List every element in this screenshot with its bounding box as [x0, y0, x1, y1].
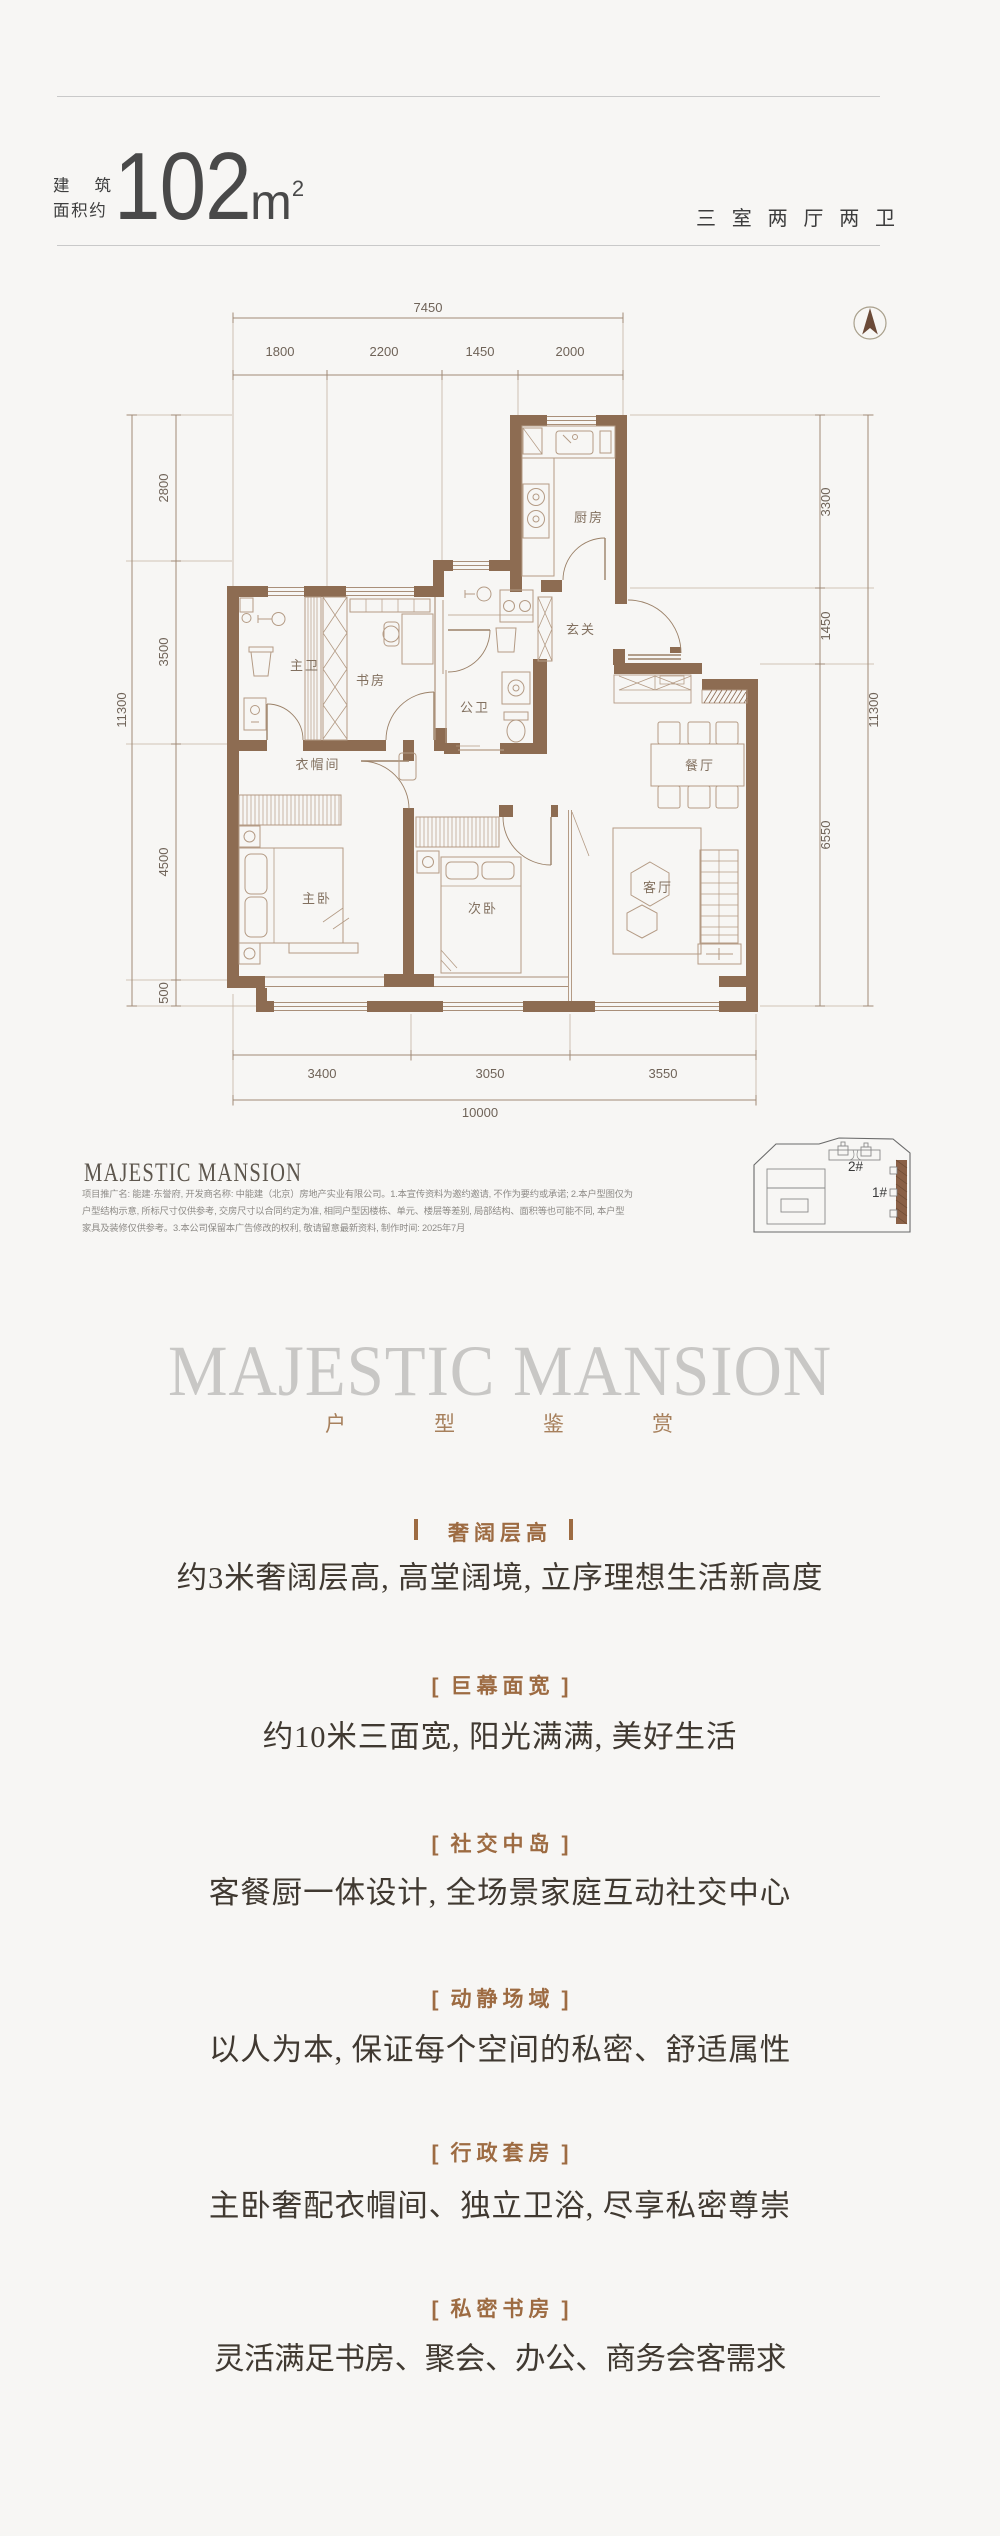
svg-text:500: 500 [156, 982, 171, 1004]
svg-text:1800: 1800 [266, 344, 295, 359]
svg-text:餐厅: 餐厅 [685, 758, 715, 773]
svg-text:10000: 10000 [462, 1105, 498, 1120]
svg-text:3500: 3500 [156, 638, 171, 667]
svg-text:1450: 1450 [466, 344, 495, 359]
svg-text:6550: 6550 [818, 821, 833, 850]
svg-text:2800: 2800 [156, 474, 171, 503]
svg-text:书房: 书房 [356, 673, 386, 688]
svg-text:1#: 1# [872, 1185, 888, 1200]
svg-text:11300: 11300 [866, 692, 881, 727]
svg-text:主卧: 主卧 [302, 891, 332, 906]
svg-text:主卫: 主卫 [290, 658, 320, 673]
svg-text:2200: 2200 [370, 344, 399, 359]
svg-text:玄关: 玄关 [566, 622, 596, 637]
svg-text:公卫: 公卫 [460, 700, 490, 715]
svg-text:2#: 2# [848, 1159, 864, 1174]
svg-text:3400: 3400 [308, 1066, 337, 1081]
svg-text:11300: 11300 [114, 692, 129, 727]
svg-text:次卧: 次卧 [468, 901, 498, 916]
svg-text:3300: 3300 [818, 488, 833, 517]
svg-text:7450: 7450 [414, 300, 443, 315]
svg-text:客厅: 客厅 [643, 880, 673, 895]
svg-text:厨房: 厨房 [574, 510, 604, 525]
svg-text:2000: 2000 [556, 344, 585, 359]
svg-text:4500: 4500 [156, 848, 171, 877]
svg-text:衣帽间: 衣帽间 [295, 757, 340, 772]
svg-text:3050: 3050 [476, 1066, 505, 1081]
svg-text:3550: 3550 [649, 1066, 678, 1081]
svg-text:1450: 1450 [818, 612, 833, 641]
